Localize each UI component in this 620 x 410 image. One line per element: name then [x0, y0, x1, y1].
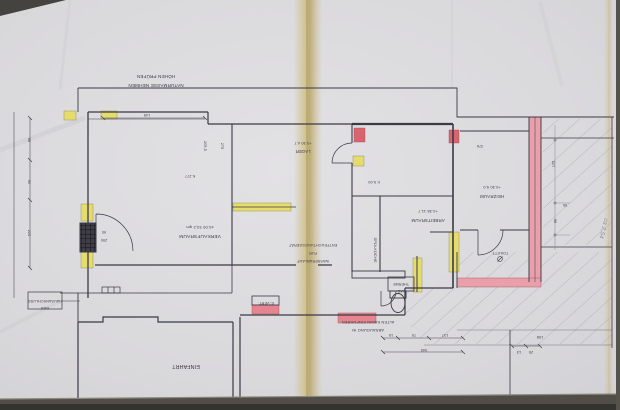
dim-145: 145: [144, 113, 151, 117]
room-verkaufsraum-name: VERKAUFSRAUM: [179, 233, 221, 239]
yellow-wall-segment: [64, 111, 76, 120]
note-wasserablauf-line3: ENTFEUCHTUNGSGERÄT: [288, 243, 337, 247]
room-arbeitsraum-name: ARBEITSRAUM: [411, 218, 445, 223]
dim-13: 13: [517, 350, 521, 354]
note-absaugung-line2: ALTEN KAMIN EINFÜHREN: [342, 320, 395, 325]
plan-svg: HÖHEN PRÜFEN NATURMASSE NEHMEN ±0.00 33,…: [0, 0, 620, 410]
note-wasserablauf-line1: WASSERABLAUF: [296, 259, 329, 263]
note-wasserablauf-line2: FÜR: [309, 251, 317, 255]
yellow-wall-segment: [449, 232, 459, 272]
room-einfahrt-name: EINFAHRT: [172, 363, 200, 369]
dim-k277: K.277: [185, 174, 195, 178]
note-naturmasse-line2: HÖHEN PRÜFEN: [137, 74, 176, 80]
room-heizraum-info: +0.30 9,0: [482, 185, 500, 190]
dim-75: 75: [412, 333, 416, 337]
label-gastherme-line2: THERME: [393, 282, 410, 286]
dim-205-5: 205,5: [203, 141, 207, 151]
note-naturmasse-line1: NATURMASSE NEHMEN: [128, 83, 183, 88]
dim-225-left: 225: [27, 230, 31, 237]
dim-275: 275: [220, 143, 224, 150]
room-spuelkueche-name: SPÜLKÜCHE: [373, 237, 378, 262]
floorplan-scan: HÖHEN PRÜFEN NATURMASSE NEHMEN ±0.00 33,…: [0, 0, 620, 410]
dim-137: 137: [442, 333, 448, 337]
dim-198: 198: [537, 335, 543, 339]
room-lager-name: LAGER: [296, 149, 311, 154]
room-arbeitsraum-info: +0.38 11,7: [418, 209, 438, 214]
pink-wall-segment: [457, 278, 541, 287]
room-lager-info: +0.30 4,7: [294, 141, 311, 145]
dim-15: 15: [389, 333, 393, 337]
label-gas-line2: HAUSANSCHLUSS: [28, 299, 62, 303]
dim-627: 627: [551, 161, 555, 168]
dim-90-door: 90: [102, 230, 106, 234]
label-evert: E-VERT.: [258, 301, 274, 305]
room-heizraum-name: HEIZRAUM: [480, 194, 504, 199]
label-gastherme-line1: GAS-: [396, 289, 406, 293]
yellow-wall-segment: [81, 204, 93, 221]
red-wall-segment: [449, 130, 459, 143]
red-wall-segment: [252, 305, 279, 314]
red-wall-segment: [354, 128, 365, 142]
room-toilette-name: TOILETT.: [492, 251, 509, 255]
dim-96-left: 96: [27, 138, 31, 142]
yellow-wall-segment: [81, 251, 93, 268]
dim-90-right: 90: [563, 203, 567, 207]
entrance-step-block: [80, 223, 96, 252]
dim-25: 25: [529, 350, 533, 354]
dim-k500: K 5,00: [368, 180, 380, 184]
dim-96-right: 96: [553, 219, 557, 223]
room-verkaufsraum-info: ±0.00 33,2 qm: [186, 225, 214, 230]
note-absaugung-line1: ABSAUGUNG IN: [352, 328, 384, 333]
paper-right-edge: [616, 0, 620, 410]
dim-290: 290: [101, 238, 107, 242]
yellow-wall-segment: [353, 156, 364, 166]
dim-376: 376: [477, 144, 484, 148]
dim-345: 345: [421, 348, 427, 352]
dim-90-left: 90: [27, 180, 31, 184]
label-gas-line1: GAS: [40, 306, 49, 310]
